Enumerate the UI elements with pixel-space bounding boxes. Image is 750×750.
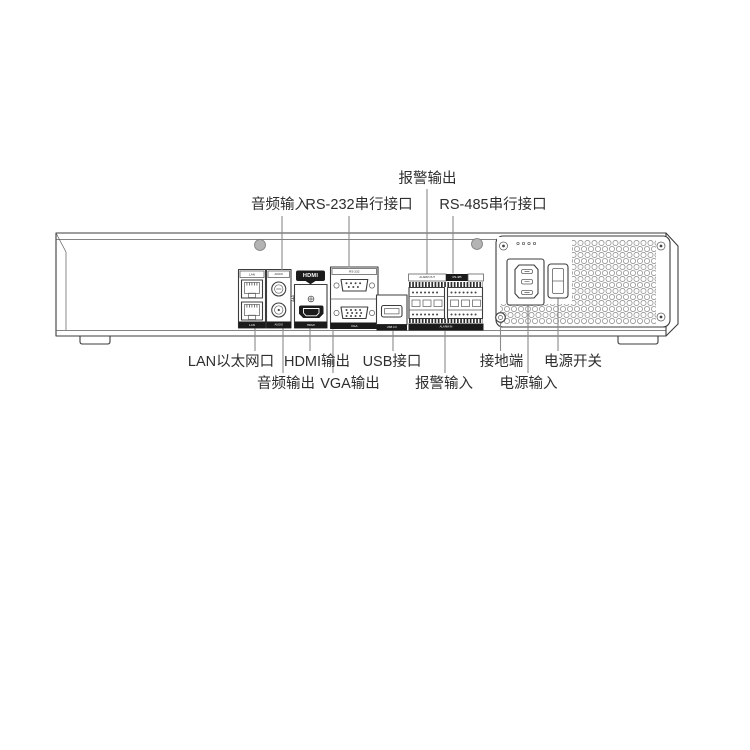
power-switch: [548, 264, 568, 298]
alarm-in-strip-label: ALARM IN: [440, 325, 453, 329]
label-hdmi: HDMI输出: [284, 353, 350, 370]
label-rs232: RS-232串行接口: [305, 196, 412, 213]
vga-bottom-strip-label: VGA: [351, 324, 358, 328]
lan-ports: LAN LAN: [239, 270, 266, 329]
label-audio-out: 音频输出: [257, 375, 315, 392]
label-rs485: RS-485串行接口: [439, 196, 546, 213]
rs485-strip-label: RS-485: [452, 275, 462, 279]
panel-screw-small-2: [308, 296, 314, 302]
panel-screw-right: [472, 239, 483, 250]
label-usb: USB接口: [363, 353, 422, 370]
right-foot: [618, 336, 658, 344]
hdmi-port: HDMI HDMI: [295, 271, 328, 329]
usb-bottom-strip-label: USB 3.0: [387, 325, 398, 329]
rear-panel-figure: LAN LAN AUDIO AUDIO HDMI: [0, 0, 750, 750]
lan-top-strip-label: LAN: [249, 272, 255, 276]
rs232-top-strip-label: RS-232: [349, 270, 360, 274]
rear-panel-diagram: LAN LAN AUDIO AUDIO HDMI: [0, 0, 750, 750]
audio-bottom-strip-label: AUDIO: [274, 322, 283, 326]
hdmi-bottom-strip-label: HDMI: [307, 323, 315, 327]
label-ground: 接地端: [480, 353, 524, 370]
audio-ports: AUDIO AUDIO: [267, 270, 292, 329]
alarm-terminal-bank-2: [448, 288, 483, 319]
label-alarm-out: 报警输出: [399, 170, 457, 187]
lan-bottom-strip-label: LAN: [249, 323, 255, 327]
audio-top-strip-label: AUDIO: [274, 272, 283, 276]
left-foot: [80, 336, 110, 344]
panel-screw-left: [255, 240, 266, 251]
power-section: [496, 236, 670, 330]
label-lan: LAN以太网口: [188, 353, 274, 370]
label-alarm-in: 报警输入: [415, 375, 473, 392]
label-power-in: 电源输入: [500, 375, 558, 392]
alarm-terminal-bank-1: [409, 288, 445, 319]
hdmi-badge-label: HDMI: [303, 273, 318, 279]
label-power-switch: 电源开关: [544, 353, 602, 370]
power-inlet: [507, 259, 544, 305]
usb-port: USB 3.0: [377, 295, 408, 331]
label-audio-in: 音频输入: [251, 196, 309, 213]
label-vga: VGA输出: [320, 375, 380, 392]
alarm-out-strip-label: ALARM OUT: [419, 275, 435, 279]
serial-video-ports: RS-232 VGA: [331, 267, 379, 329]
